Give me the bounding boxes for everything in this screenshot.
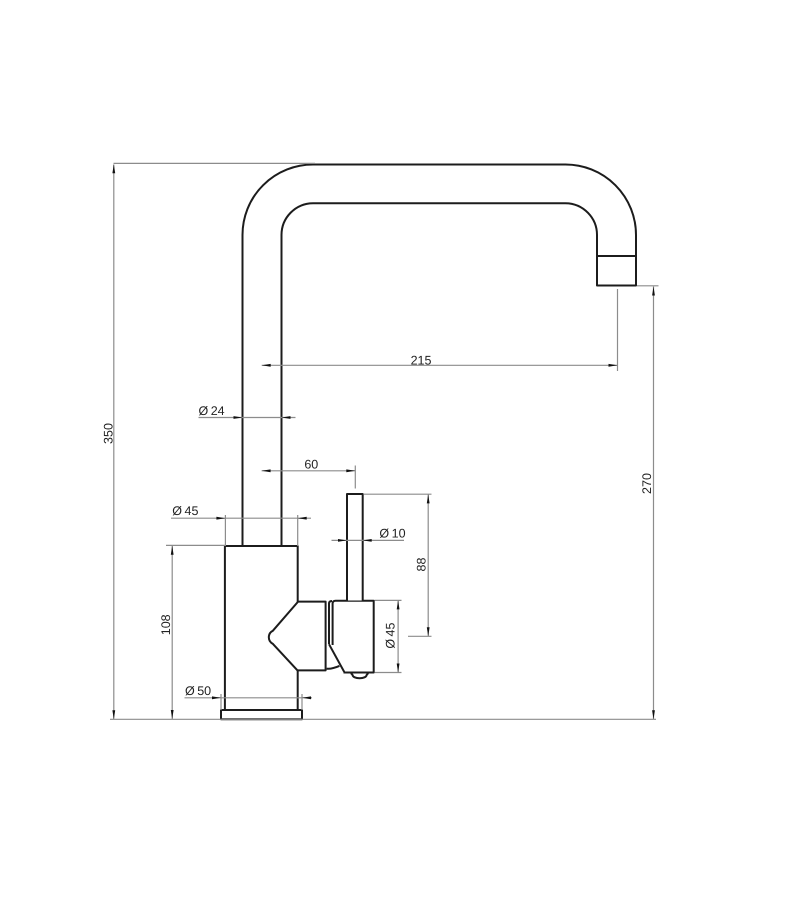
svg-text:Ø 50: Ø 50 — [185, 684, 211, 698]
svg-text:60: 60 — [304, 458, 318, 472]
svg-text:88: 88 — [414, 558, 428, 572]
svg-text:270: 270 — [640, 473, 654, 494]
svg-text:Ø 45: Ø 45 — [384, 622, 398, 648]
svg-text:Ø 24: Ø 24 — [199, 404, 225, 418]
svg-text:215: 215 — [411, 354, 432, 368]
svg-text:108: 108 — [159, 614, 173, 635]
svg-text:Ø 10: Ø 10 — [379, 527, 405, 541]
svg-text:350: 350 — [101, 423, 115, 444]
svg-text:Ø 45: Ø 45 — [172, 504, 198, 518]
